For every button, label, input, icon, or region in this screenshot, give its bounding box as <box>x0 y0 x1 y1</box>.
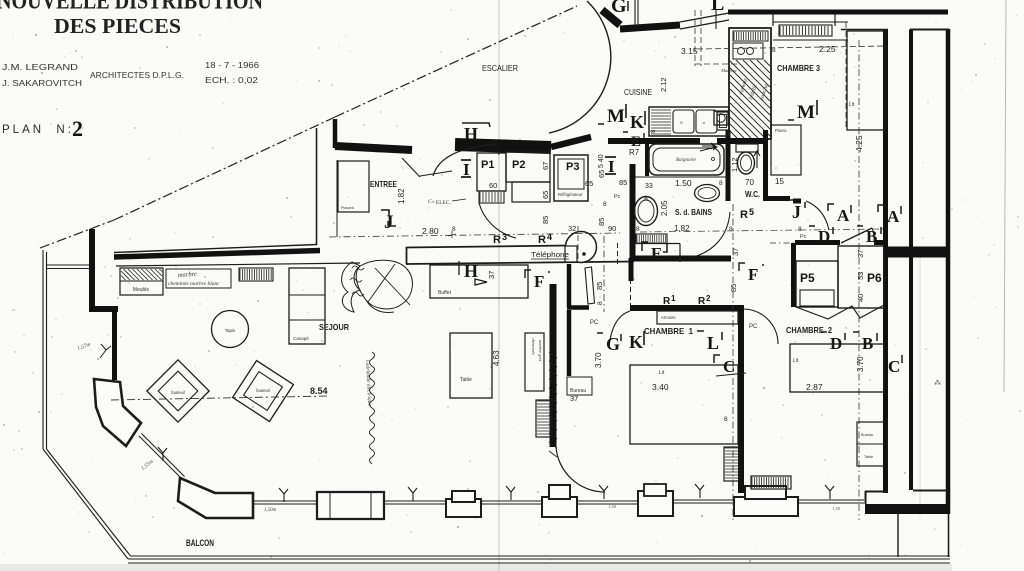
svg-text:NOUVELLE DISTRIBUTION: NOUVELLE DISTRIBUTION <box>0 0 264 15</box>
svg-text:R: R <box>663 296 671 307</box>
svg-text:L: L <box>707 333 719 353</box>
svg-text:P1: P1 <box>481 159 494 171</box>
svg-text:J: J <box>792 202 801 222</box>
svg-text:M: M <box>607 106 625 127</box>
svg-text:2.12: 2.12 <box>659 77 668 92</box>
svg-text:3.70: 3.70 <box>594 352 603 368</box>
svg-text:C: C <box>888 357 900 376</box>
svg-text:CHAMBRE 2: CHAMBRE 2 <box>786 325 832 335</box>
svg-text:3: 3 <box>502 232 507 242</box>
svg-text:J.M. LEGRAND: J.M. LEGRAND <box>2 62 78 72</box>
svg-text:P6: P6 <box>867 271 882 285</box>
svg-text:65: 65 <box>585 179 593 188</box>
svg-text:8: 8 <box>597 301 604 305</box>
svg-text:8: 8 <box>636 226 640 233</box>
svg-text:32: 32 <box>568 224 576 233</box>
svg-text:1,50m: 1,50m <box>264 508 277 513</box>
svg-text:PC: PC <box>590 320 599 326</box>
svg-text:P3: P3 <box>566 161 579 173</box>
svg-text:85: 85 <box>541 216 550 224</box>
svg-text:3.40: 3.40 <box>652 382 669 392</box>
svg-text:2.80: 2.80 <box>422 226 439 236</box>
svg-text:Lit: Lit <box>659 370 665 376</box>
svg-text:fauteuil: fauteuil <box>256 388 270 393</box>
svg-text:A: A <box>887 207 900 226</box>
svg-text:ESCALIER: ESCALIER <box>482 63 518 73</box>
svg-text:2.05: 2.05 <box>660 200 669 216</box>
svg-text:33: 33 <box>645 183 653 190</box>
svg-text:marbre: marbre <box>178 271 197 279</box>
svg-text:R: R <box>538 234 546 246</box>
svg-text:Tapis: Tapis <box>225 328 236 333</box>
svg-text:S: S <box>680 120 683 125</box>
svg-text:2: 2 <box>706 294 711 303</box>
svg-text:A: A <box>837 206 850 225</box>
svg-text:2: 2 <box>72 116 83 141</box>
svg-text:L: L <box>711 0 724 15</box>
svg-text:K: K <box>630 112 644 132</box>
svg-text:PLAN N:: PLAN N: <box>2 124 74 136</box>
svg-text:P5: P5 <box>800 271 815 285</box>
svg-text:G: G <box>611 0 627 17</box>
svg-text:K: K <box>629 332 643 352</box>
svg-text:Canapé: Canapé <box>293 336 309 341</box>
svg-text:cheminée: cheminée <box>531 338 536 355</box>
svg-text:DES PIECES: DES PIECES <box>54 14 181 38</box>
svg-text:F: F <box>534 272 544 291</box>
svg-text:Placard: Placard <box>341 206 354 210</box>
svg-text:Piano: Piano <box>775 128 787 133</box>
svg-text:1.50: 1.50 <box>675 178 692 188</box>
svg-text:67: 67 <box>541 162 550 170</box>
svg-text:C: C <box>723 357 735 376</box>
svg-text:fauteuil: fauteuil <box>171 390 185 395</box>
svg-text:53: 53 <box>856 272 865 280</box>
svg-text:Buffet: Buffet <box>438 290 452 296</box>
svg-text:1.82: 1.82 <box>397 188 406 204</box>
svg-text:Table: Table <box>460 377 472 383</box>
svg-text:8: 8 <box>452 226 456 233</box>
svg-text:85: 85 <box>595 282 604 290</box>
svg-text:F: F <box>748 265 758 284</box>
svg-text:4.63: 4.63 <box>492 350 501 366</box>
svg-text:Table: Table <box>864 455 873 459</box>
svg-text:E: E <box>651 244 662 263</box>
svg-text:CHAMBRE 3: CHAMBRE 3 <box>777 63 820 73</box>
svg-text:5: 5 <box>749 207 754 217</box>
svg-text:8: 8 <box>603 201 607 208</box>
svg-text:2.25: 2.25 <box>819 44 836 54</box>
svg-text:SEJOUR: SEJOUR <box>319 322 349 332</box>
svg-text:65: 65 <box>541 191 550 199</box>
svg-text:90: 90 <box>608 224 616 233</box>
svg-text:Pc: Pc <box>800 234 807 240</box>
svg-text:ECH. : 0,02: ECH. : 0,02 <box>205 75 258 85</box>
svg-text:4: 4 <box>547 232 552 242</box>
svg-text:37: 37 <box>487 271 496 279</box>
svg-text:85: 85 <box>619 178 627 187</box>
svg-text:85: 85 <box>597 218 606 226</box>
svg-text:S. d. BAINS: S. d. BAINS <box>675 207 712 217</box>
svg-text:60: 60 <box>489 181 497 190</box>
svg-text:2.87: 2.87 <box>806 382 823 392</box>
svg-text:Meuble: Meuble <box>133 287 150 293</box>
svg-text:J. SAKAROVITCH: J. SAKAROVITCH <box>2 78 82 88</box>
svg-text:R7: R7 <box>629 148 640 157</box>
svg-text:Téléphone: Téléphone <box>531 250 569 259</box>
svg-text:marbre gris: marbre gris <box>538 340 543 361</box>
svg-text:CUISINE: CUISINE <box>624 87 652 97</box>
svg-text:R: R <box>493 234 501 246</box>
svg-text:BALCON: BALCON <box>186 538 214 548</box>
svg-text:Réfrigérateur: Réfrigérateur <box>558 192 583 197</box>
svg-text:37: 37 <box>731 248 740 256</box>
svg-text:15: 15 <box>775 177 784 186</box>
svg-text:H: H <box>464 124 478 144</box>
svg-text:Lit: Lit <box>849 102 855 108</box>
svg-text:ARCHITECTES D.P.L.G.: ARCHITECTES D.P.L.G. <box>90 70 184 80</box>
svg-text:cheminée marbre blanc: cheminée marbre blanc <box>168 281 220 287</box>
svg-text:8.54: 8.54 <box>310 386 328 396</box>
svg-text:Bureau: Bureau <box>861 433 873 437</box>
svg-text:65: 65 <box>597 170 606 178</box>
svg-text:Baignoire: Baignoire <box>676 158 697 163</box>
svg-text:Lit: Lit <box>793 358 799 364</box>
svg-text:3.70: 3.70 <box>856 356 865 372</box>
svg-text:M: M <box>797 102 815 123</box>
svg-text:CHAMBRE 1: CHAMBRE 1 <box>644 326 693 336</box>
svg-text:R: R <box>698 296 706 307</box>
svg-text:40: 40 <box>856 294 865 302</box>
svg-text:70: 70 <box>745 178 754 187</box>
svg-text:P2: P2 <box>512 159 525 171</box>
svg-text:R: R <box>740 209 748 221</box>
svg-text:G: G <box>606 334 620 354</box>
svg-text:1.12: 1.12 <box>730 157 739 172</box>
svg-text:Pc: Pc <box>614 194 621 200</box>
svg-text:W.C.: W.C. <box>745 189 760 199</box>
svg-text:ᵗᵉ ELEC.: ᵗᵉ ELEC. <box>432 200 452 206</box>
svg-text:8: 8 <box>719 180 723 187</box>
svg-text:85: 85 <box>729 284 738 292</box>
svg-text:ENTREE: ENTREE <box>370 179 397 189</box>
svg-text:1: 1 <box>671 294 676 303</box>
svg-text:37: 37 <box>856 250 865 258</box>
svg-text:⁂: ⁂ <box>934 379 941 387</box>
svg-text:8: 8 <box>724 416 728 423</box>
svg-text:Armoire: Armoire <box>661 315 676 320</box>
svg-text:8: 8 <box>798 226 802 233</box>
svg-text:Machine: Machine <box>720 68 737 73</box>
svg-text:5 40: 5 40 <box>598 154 605 168</box>
svg-text:PC: PC <box>749 324 758 330</box>
svg-text:B: B <box>866 227 877 246</box>
svg-text:8: 8 <box>729 226 733 233</box>
svg-text:H: H <box>464 261 478 281</box>
svg-text:18 - 7 - 1966: 18 - 7 - 1966 <box>205 60 259 70</box>
